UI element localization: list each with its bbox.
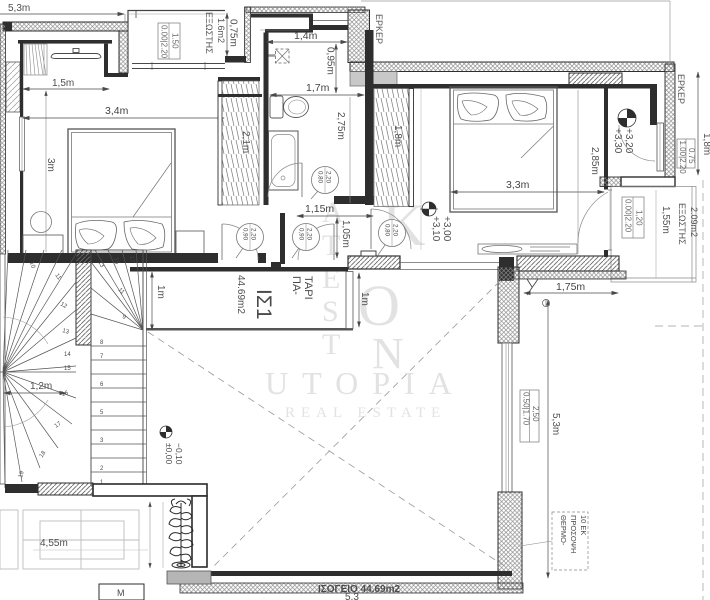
svg-text:2,1m: 2,1m <box>240 131 251 153</box>
svg-text:0.75: 0.75 <box>687 148 696 164</box>
svg-text:ΕΞΩΣΤΗΣ: ΕΞΩΣΤΗΣ <box>204 12 214 54</box>
svg-text:4,55m: 4,55m <box>40 538 68 549</box>
svg-text:2,20: 2,20 <box>392 224 399 237</box>
svg-text:ΕΡΚΕΡ: ΕΡΚΕΡ <box>374 14 384 44</box>
svg-text:2.09m2: 2.09m2 <box>689 207 699 237</box>
svg-text:2,75m: 2,75m <box>335 112 346 140</box>
svg-text:2,20: 2,20 <box>250 228 257 241</box>
svg-text:1,8m: 1,8m <box>392 125 403 147</box>
svg-text:ΠΡΟΣΟΨΗ: ΠΡΟΣΟΨΗ <box>569 515 578 553</box>
svg-text:−0,10: −0,10 <box>174 443 184 465</box>
svg-text:2,20: 2,20 <box>306 228 313 241</box>
svg-text:1.00|2.20: 1.00|2.20 <box>678 141 687 175</box>
svg-text:ΘΕΡΜΟ-: ΘΕΡΜΟ- <box>559 515 568 546</box>
svg-text:+3,00: +3,00 <box>441 216 452 242</box>
svg-text:2,85m: 2,85m <box>589 147 600 175</box>
svg-text:UTOPIA: UTOPIA <box>265 365 466 401</box>
svg-text:10 ΕΚ: 10 ΕΚ <box>579 515 588 535</box>
svg-text:5,3m: 5,3m <box>550 413 561 435</box>
svg-text:T: T <box>322 328 340 361</box>
svg-text:0,80: 0,80 <box>384 224 391 237</box>
svg-text:15: 15 <box>64 366 71 372</box>
svg-text:1.6m2: 1.6m2 <box>216 18 226 43</box>
svg-text:0,90: 0,90 <box>298 228 305 241</box>
svg-text:1,5m: 1,5m <box>52 78 74 89</box>
svg-text:±0,00: ±0,00 <box>164 443 174 464</box>
svg-text:+3,30: +3,30 <box>612 128 623 154</box>
svg-text:ΕΞΩΣΤΗΣ: ΕΞΩΣΤΗΣ <box>677 203 687 245</box>
svg-text:1,75m: 1,75m <box>556 281 585 293</box>
svg-text:3m: 3m <box>45 158 56 172</box>
svg-text:1.50: 1.50 <box>171 33 180 49</box>
svg-text:0.00|2.20: 0.00|2.20 <box>160 25 169 59</box>
svg-text:ΙΣ1: ΙΣ1 <box>252 289 275 320</box>
svg-text:0,80: 0,80 <box>317 171 324 184</box>
svg-text:S: S <box>322 295 339 328</box>
svg-text:E: E <box>322 262 340 295</box>
svg-text:0.50|1.70: 0.50|1.70 <box>522 392 531 426</box>
svg-text:0.00|2.20: 0.00|2.20 <box>624 199 633 233</box>
svg-text:REAL ESTATE: REAL ESTATE <box>285 405 446 421</box>
svg-text:1,15m: 1,15m <box>305 203 334 215</box>
svg-text:ΙΣΟΓΕΙΟ 44.69m2: ΙΣΟΓΕΙΟ 44.69m2 <box>318 584 400 595</box>
svg-text:5,3m: 5,3m <box>8 3 30 14</box>
svg-text:1,2m: 1,2m <box>30 381 52 392</box>
svg-text:ΕΡΚΕΡ: ΕΡΚΕΡ <box>676 74 686 104</box>
svg-text:1,8m: 1,8m <box>701 133 710 155</box>
svg-text:ΠΑ-: ΠΑ- <box>290 276 302 295</box>
svg-text:1,55m: 1,55m <box>660 206 671 234</box>
svg-text:0,75m: 0,75m <box>228 19 239 47</box>
svg-text:1m: 1m <box>155 285 166 299</box>
svg-text:1,7m: 1,7m <box>306 82 330 94</box>
svg-text:1,4m: 1,4m <box>294 30 318 42</box>
svg-text:14: 14 <box>64 352 71 358</box>
svg-text:2,20: 2,20 <box>325 171 332 184</box>
svg-text:3,3m: 3,3m <box>506 179 530 191</box>
svg-text:0,95m: 0,95m <box>325 47 336 75</box>
svg-text:2,50: 2,50 <box>531 406 540 422</box>
svg-text:3,4m: 3,4m <box>105 105 129 117</box>
svg-text:5,3: 5,3 <box>345 592 359 600</box>
svg-text:0,90: 0,90 <box>242 228 249 241</box>
svg-text:1,20: 1,20 <box>635 210 644 226</box>
svg-text:1m: 1m <box>359 292 370 306</box>
svg-text:T: T <box>322 229 340 262</box>
svg-text:44.69m2: 44.69m2 <box>235 275 246 314</box>
svg-text:M: M <box>117 588 125 598</box>
svg-text:ΤΑΡΙ: ΤΑΡΙ <box>302 276 314 300</box>
svg-text:+3,10: +3,10 <box>430 216 441 242</box>
svg-text:1,05m: 1,05m <box>340 220 351 248</box>
svg-text:17: 17 <box>128 256 135 264</box>
